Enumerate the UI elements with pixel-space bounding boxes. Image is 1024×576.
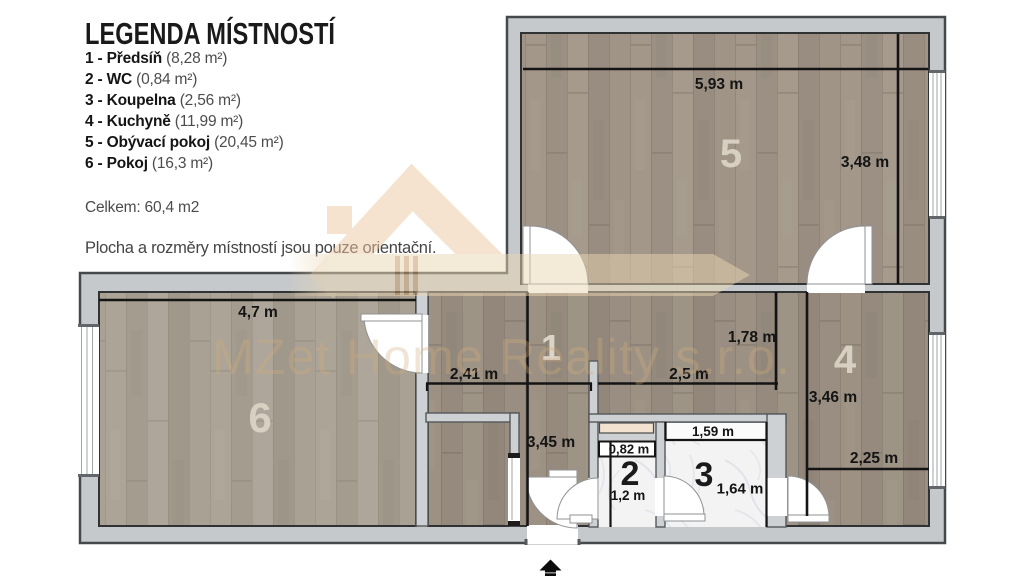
svg-text:1 - Předsíň (8,28 m²): 1 - Předsíň (8,28 m²) (85, 50, 227, 67)
svg-text:LEGENDA MÍSTNOSTÍ: LEGENDA MÍSTNOSTÍ (85, 16, 336, 51)
svg-text:4,7 m: 4,7 m (238, 304, 278, 321)
svg-text:5: 5 (720, 132, 742, 176)
svg-text:3: 3 (695, 456, 714, 494)
svg-text:1,64 m: 1,64 m (717, 481, 764, 498)
svg-text:2: 2 (621, 455, 640, 493)
svg-text:2,25 m: 2,25 m (850, 450, 898, 467)
svg-text:2 - WC (0,84 m²): 2 - WC (0,84 m²) (85, 71, 197, 88)
svg-text:3 - Koupelna (2,56 m²): 3 - Koupelna (2,56 m²) (85, 92, 241, 109)
svg-text:1,59 m: 1,59 m (692, 424, 734, 439)
svg-text:6: 6 (248, 394, 271, 441)
svg-text:Celkem: 60,4 m2: Celkem: 60,4 m2 (85, 199, 199, 216)
svg-text:5,93 m: 5,93 m (695, 76, 743, 93)
svg-text:4 - Kuchyně (11,99 m²): 4 - Kuchyně (11,99 m²) (85, 113, 243, 130)
svg-text:5 - Obývací pokoj (20,45 m²): 5 - Obývací pokoj (20,45 m²) (85, 134, 284, 151)
svg-text:4: 4 (834, 338, 857, 382)
svg-text:3,45 m: 3,45 m (527, 434, 575, 451)
svg-text:3,46 m: 3,46 m (809, 389, 857, 406)
svg-text:MZet Home Reality s.r.o.: MZet Home Reality s.r.o. (212, 329, 791, 385)
svg-text:3,48 m: 3,48 m (841, 154, 889, 171)
svg-text:6 - Pokoj (16,3 m²): 6 - Pokoj (16,3 m²) (85, 155, 213, 172)
